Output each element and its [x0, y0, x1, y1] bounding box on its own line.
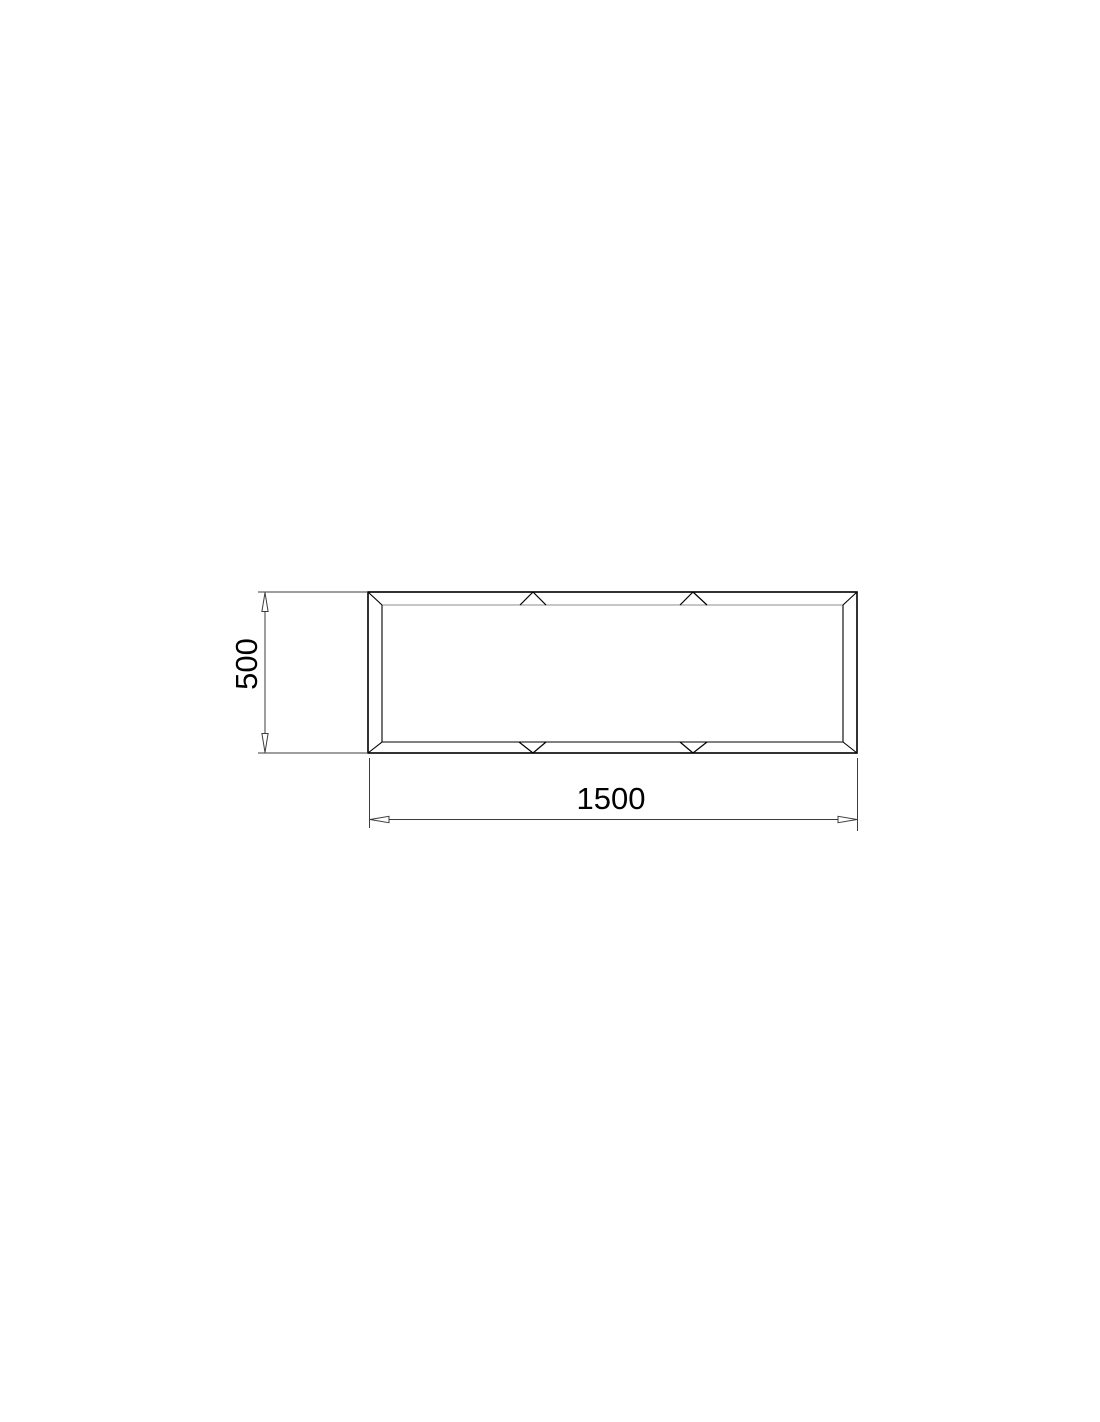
corner-miter-bottom-right — [843, 742, 857, 753]
arrowhead-left-icon — [370, 816, 389, 822]
corner-miter-top-left — [368, 592, 382, 605]
joint-mark-top-2 — [680, 592, 707, 605]
joint-mark-bottom-2 — [680, 742, 707, 753]
arrowhead-up-icon — [262, 593, 268, 612]
corner-miter-bottom-left — [368, 742, 382, 753]
dimension-width: 1500 — [370, 758, 858, 831]
dimension-width-label: 1500 — [577, 781, 646, 816]
drawing-canvas: 500 1500 — [0, 0, 1100, 1422]
dimension-height: 500 — [229, 592, 368, 753]
arrowhead-down-icon — [262, 734, 268, 753]
frame-outer-edge — [368, 592, 857, 753]
frame-view — [368, 592, 857, 753]
arrowhead-right-icon — [838, 816, 857, 822]
cad-drawing: 500 1500 — [0, 0, 1100, 1422]
joint-mark-top-1 — [520, 592, 546, 605]
joint-mark-bottom-1 — [519, 742, 546, 753]
dimension-height-label: 500 — [229, 638, 264, 690]
corner-miter-top-right — [843, 592, 857, 605]
